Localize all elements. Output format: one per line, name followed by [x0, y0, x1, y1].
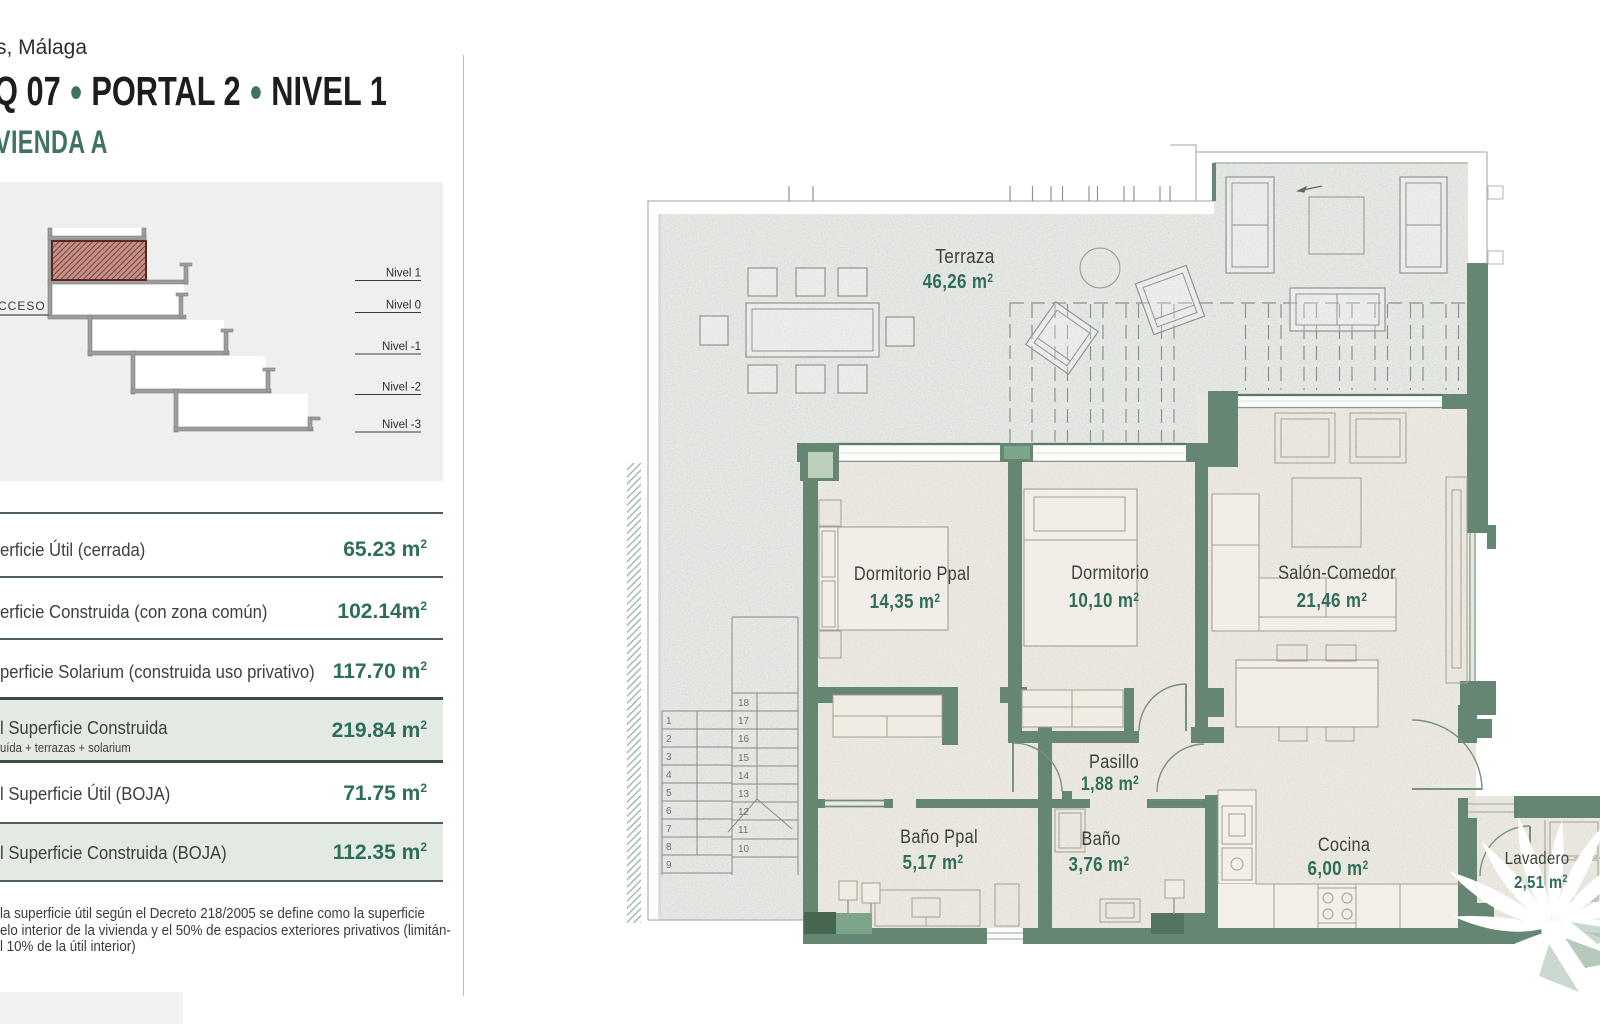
- svg-text:9: 9: [666, 860, 672, 871]
- svg-text:13: 13: [738, 789, 750, 800]
- svg-text:14: 14: [738, 771, 750, 782]
- svg-text:16: 16: [738, 734, 750, 745]
- svg-text:7: 7: [666, 824, 672, 835]
- svg-text:15: 15: [738, 753, 750, 764]
- svg-text:10: 10: [738, 844, 750, 855]
- svg-text:6,00 m2: 6,00 m2: [1308, 857, 1369, 880]
- svg-text:46,26 m2: 46,26 m2: [923, 270, 994, 293]
- svg-text:Baño: Baño: [1081, 828, 1120, 849]
- svg-text:3,76 m2: 3,76 m2: [1069, 853, 1130, 876]
- svg-text:2: 2: [666, 734, 672, 745]
- svg-text:11: 11: [738, 825, 749, 836]
- svg-text:10,10 m2: 10,10 m2: [1069, 589, 1140, 612]
- svg-text:21,46 m2: 21,46 m2: [1297, 589, 1368, 612]
- svg-text:Terraza: Terraza: [935, 245, 994, 268]
- svg-text:Cocina: Cocina: [1318, 834, 1370, 855]
- svg-text:1,88 m2: 1,88 m2: [1081, 773, 1139, 795]
- svg-text:12: 12: [738, 807, 750, 818]
- svg-text:2,51 m2: 2,51 m2: [1514, 873, 1568, 892]
- svg-text:4: 4: [666, 770, 672, 781]
- svg-text:3: 3: [666, 752, 672, 763]
- svg-text:5: 5: [666, 788, 672, 799]
- svg-text:Dormitorio: Dormitorio: [1071, 562, 1149, 583]
- svg-text:Lavadero: Lavadero: [1505, 849, 1570, 868]
- svg-text:8: 8: [666, 842, 672, 853]
- svg-text:17: 17: [738, 716, 750, 727]
- svg-text:Salón-Comedor: Salón-Comedor: [1278, 562, 1396, 583]
- svg-text:Pasillo: Pasillo: [1089, 751, 1139, 772]
- svg-text:6: 6: [666, 806, 672, 817]
- svg-text:Dormitorio Ppal: Dormitorio Ppal: [854, 563, 970, 584]
- svg-text:Baño Ppal: Baño Ppal: [900, 826, 978, 847]
- svg-text:1: 1: [666, 716, 672, 727]
- svg-text:5,17 m2: 5,17 m2: [903, 851, 964, 874]
- svg-text:18: 18: [738, 698, 750, 709]
- svg-text:14,35 m2: 14,35 m2: [870, 590, 941, 613]
